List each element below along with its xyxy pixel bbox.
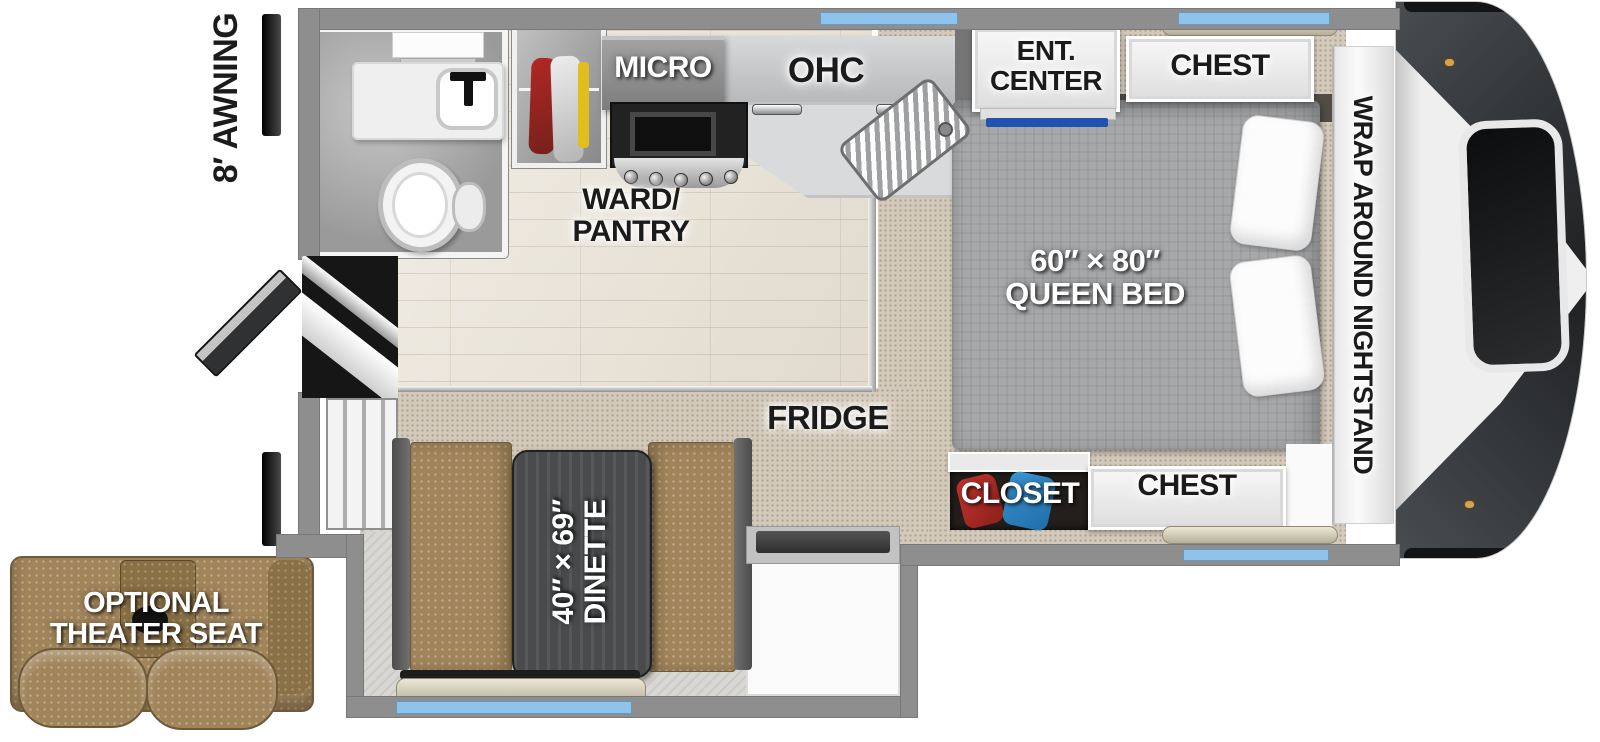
nightstand-shelf-bottom xyxy=(1162,526,1338,544)
hanging-clothes-yellow xyxy=(578,62,589,148)
dinette-bench-right xyxy=(648,442,736,672)
clearance-light-top xyxy=(1444,58,1455,67)
theater-seat-cushion-left xyxy=(18,648,148,728)
tv-accent-strip xyxy=(986,118,1108,127)
window-top-bedroom xyxy=(1178,12,1330,25)
dinette-label-wrap: 40″ × 69″ DINETTE xyxy=(542,466,618,658)
theater-seat-cushion-right xyxy=(146,648,278,730)
front-cap-window xyxy=(1458,118,1571,373)
cabinet-handle-left xyxy=(752,104,802,115)
queen-bed-label: 60″ × 80″ QUEEN BED xyxy=(975,244,1215,311)
ent-center-label: ENT. CENTER xyxy=(972,36,1120,96)
oven-window xyxy=(630,112,716,156)
entry-white-floor xyxy=(746,562,900,696)
entry-step-tread xyxy=(756,531,890,553)
window-top-galley xyxy=(820,12,958,25)
stove-knob-5 xyxy=(724,170,738,184)
toilet-seat xyxy=(392,172,448,238)
wall-left-upper xyxy=(298,8,320,260)
toilet-tank xyxy=(452,182,486,232)
awning-label-wrap: 8′ AWNING xyxy=(204,6,248,190)
entry-door-panel-open xyxy=(194,269,303,378)
closet-label: CLOSET xyxy=(950,478,1090,510)
dinette-size-label: 40″ × 69″ xyxy=(548,499,580,624)
nightstand-label-wrap: WRAP AROUND NIGHTSTAND xyxy=(1341,50,1383,520)
ward-pantry-line2: PANTRY xyxy=(556,216,706,248)
bathroom-skylight xyxy=(392,32,484,58)
ent-center-line1: ENT. xyxy=(972,36,1120,66)
awning-label: 8′ AWNING xyxy=(208,13,245,184)
ward-pantry-label: WARD/ PANTRY xyxy=(556,184,706,249)
bed-size-line: 60″ × 80″ xyxy=(975,244,1215,277)
theater-seat-label: OPTIONAL THEATER SEAT xyxy=(30,588,282,651)
fridge-label: FRIDGE xyxy=(758,400,898,436)
front-cap xyxy=(1396,2,1586,558)
clearance-light-bottom xyxy=(1464,500,1475,509)
window-rear-dinette xyxy=(396,701,632,714)
wall-dinette-left xyxy=(346,534,364,718)
awning-arm-top xyxy=(262,14,281,136)
entry-steps xyxy=(326,398,398,530)
entry-door-opening xyxy=(302,256,398,398)
nightstand-label: WRAP AROUND NIGHTSTAND xyxy=(1347,96,1376,474)
pillow-bottom xyxy=(1228,254,1326,399)
bathroom-faucet-stem xyxy=(464,78,473,106)
chest-bottom-label: CHEST xyxy=(1088,470,1286,502)
kitchen-faucet xyxy=(938,122,953,137)
dinette-name-label: DINETTE xyxy=(580,500,612,625)
theater-line2: THEATER SEAT xyxy=(30,619,282,650)
awning-arm-bottom xyxy=(262,452,281,546)
pillow-top xyxy=(1228,113,1325,252)
dinette-bench-left xyxy=(410,442,512,672)
dinette-headrest-left xyxy=(392,438,410,670)
wall-left-lower xyxy=(298,392,320,554)
front-cap-bottom-trim xyxy=(1404,548,1556,558)
front-cap-edge-strip xyxy=(1396,2,1422,558)
micro-label: MICRO xyxy=(602,52,724,84)
wall-dinette-right xyxy=(900,544,918,718)
floorplan-canvas: 8′ AWNING xyxy=(0,0,1600,742)
chest-top-label: CHEST xyxy=(1126,50,1314,82)
ward-pantry-line1: WARD/ xyxy=(556,184,706,216)
ent-center-line2: CENTER xyxy=(972,66,1120,96)
stove-knob-1 xyxy=(624,170,638,184)
front-cap-top-trim xyxy=(1404,2,1556,12)
window-bottom-bedroom xyxy=(1183,549,1329,561)
bed-type-line: QUEEN BED xyxy=(975,277,1215,310)
closet-shelf xyxy=(948,452,1090,472)
floor-trim-horizontal xyxy=(360,386,872,392)
theater-line1: OPTIONAL xyxy=(30,588,282,619)
ohc-label: OHC xyxy=(766,52,886,90)
